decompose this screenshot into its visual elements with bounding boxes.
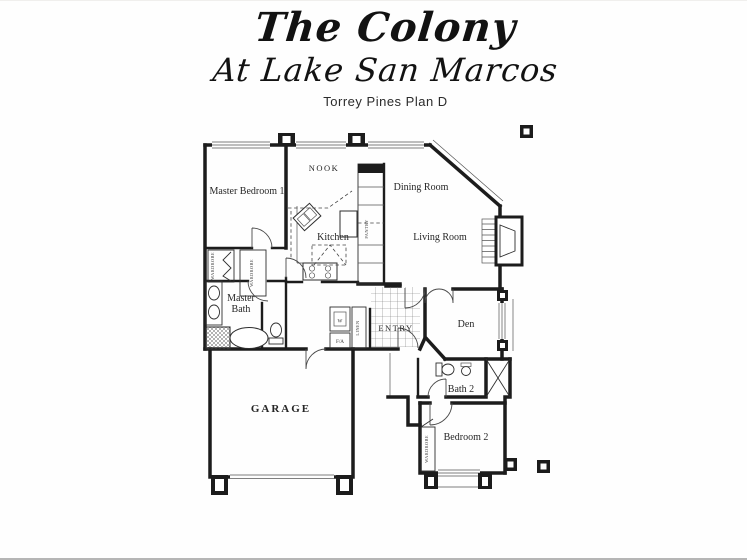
floor-plan-page: The Colony At Lake San Marcos Torrey Pin… bbox=[0, 0, 747, 560]
wardrobe-label-1: WARDROBE bbox=[210, 252, 215, 280]
master-toilet-icon bbox=[271, 323, 282, 337]
room-labels: Master Bedroom 1 NOOK Dining Room Living… bbox=[210, 163, 489, 443]
bathtub-icon bbox=[230, 328, 268, 349]
vanity bbox=[206, 281, 222, 325]
linen-label: LINEN bbox=[355, 320, 360, 336]
den-label: Den bbox=[458, 319, 475, 330]
master-bath-label-1: Master bbox=[227, 293, 255, 304]
dining-room-label: Dining Room bbox=[394, 182, 449, 193]
entry-label: ENTRY bbox=[378, 323, 413, 333]
bedroom2-label: Bedroom 2 bbox=[444, 432, 489, 443]
nook-label: NOOK bbox=[309, 163, 340, 173]
bath2-label: Bath 2 bbox=[448, 384, 474, 395]
vanity-sink-2-icon bbox=[209, 305, 220, 319]
fau-label: F/A bbox=[336, 339, 344, 345]
entry-tile-floor bbox=[371, 287, 420, 347]
utility-closets: W F/A LINEN bbox=[330, 307, 366, 348]
fireplace bbox=[482, 217, 522, 265]
garage-label: GARAGE bbox=[251, 403, 311, 415]
bath2-sink-icon bbox=[462, 367, 471, 376]
living-room-label: Living Room bbox=[413, 232, 467, 243]
kitchen-label: Kitchen bbox=[317, 232, 349, 243]
water-heater-label: W bbox=[338, 319, 343, 325]
wardrobe-label-bedroom2: WARDROBE bbox=[424, 435, 429, 463]
garage-door bbox=[211, 473, 353, 495]
master-bedroom-label: Master Bedroom 1 bbox=[210, 186, 285, 197]
vanity-sink-1-icon bbox=[209, 286, 220, 300]
master-bath-label-2: Bath bbox=[232, 304, 251, 315]
pantry-cabinets: PANTRY bbox=[358, 164, 384, 284]
wardrobe-label-2: WARDROBE bbox=[249, 259, 254, 287]
bath2-fixtures: WARDROBE bbox=[421, 359, 510, 471]
bath2-toilet-icon bbox=[442, 364, 454, 375]
pantry-label: PANTRY bbox=[364, 219, 369, 239]
stove-icon bbox=[303, 263, 337, 280]
closet-x-marks bbox=[486, 359, 510, 397]
shower-icon bbox=[206, 327, 230, 349]
interior-walls bbox=[205, 145, 400, 349]
floor-plan-drawing: PANTRY WARDROBE WARDROBE W F/A LINEN bbox=[0, 1, 747, 560]
